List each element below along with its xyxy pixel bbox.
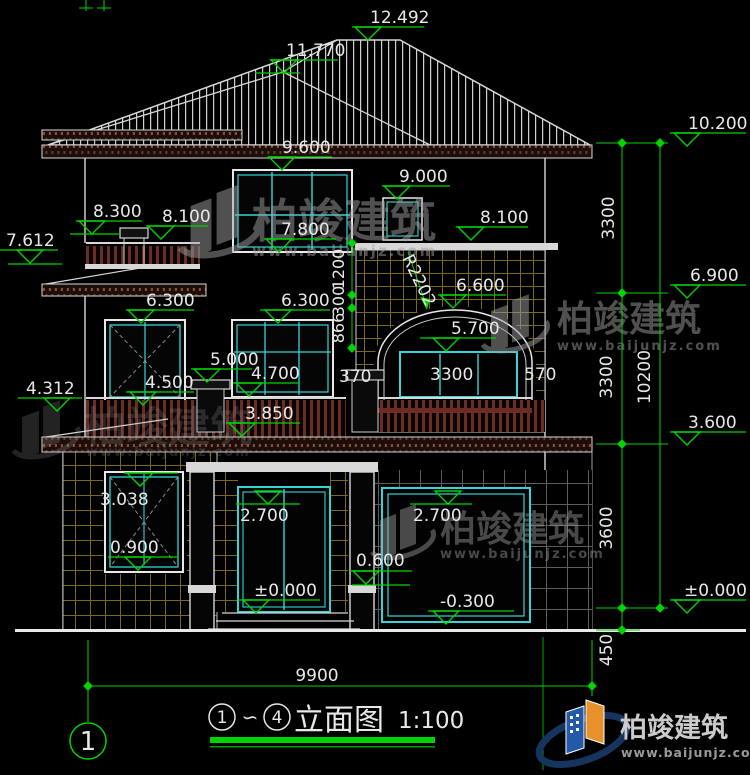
elev-door-top: 2.700	[240, 506, 289, 526]
drawing-title: 1 ∽ 4 立面图 1:100	[209, 703, 464, 748]
title-underline	[210, 737, 435, 743]
left-wing-eave-band	[42, 130, 242, 140]
dim-chain-3: 866	[329, 313, 348, 344]
svg-text:www.baijunjz.com: www.baijunjz.com	[86, 445, 251, 460]
elev-win2m-top: 6.300	[281, 291, 330, 311]
elev-ledge: 0.600	[356, 551, 405, 571]
elev-win1-sill: 0.900	[110, 538, 159, 558]
dim-arch-right: 570	[524, 365, 556, 385]
railing-arch-recess	[378, 400, 532, 432]
elev-win2l-top: 6.300	[146, 291, 195, 311]
elev-balc2-floor: 3.850	[245, 404, 294, 424]
logo-brand-name: 柏竣建筑	[620, 712, 728, 744]
logo-brand-url: www.baijunjz.com	[621, 745, 750, 760]
dim-right-seg3: 3600	[597, 506, 617, 549]
elev-slab3-right: 8.100	[480, 208, 529, 228]
elev-eave-right: 10.200	[688, 114, 747, 134]
elev-hip: 11.770	[286, 41, 345, 61]
dim-right-seg1: 3300	[599, 196, 619, 239]
brand-logo: 柏竣建筑 www.baijunjz.com	[533, 700, 750, 775]
dim-arch-win: 3300	[430, 365, 473, 385]
watermark-brand-text: 柏竣建筑	[252, 194, 436, 248]
post-cap-5000	[191, 380, 230, 389]
dim-chain-1: 1200	[329, 249, 348, 290]
elev-balc3-slab: 8.100	[162, 207, 211, 227]
title-tilde: ∽	[242, 705, 259, 729]
elev-win2l-sill: 4.500	[145, 373, 194, 393]
elev-win2m-sill: 4.700	[251, 364, 300, 384]
dim-chain-2: 300	[329, 286, 348, 317]
dim-arch-left: 370	[339, 367, 371, 387]
watermark-bottom: 柏竣建筑 www.baijunjz.com	[372, 504, 605, 562]
elev-skirt2: 4.312	[26, 379, 75, 399]
logo-building-orange	[586, 700, 604, 744]
dim-right-seg4: 450	[597, 634, 617, 666]
balcony-3f-left	[42, 228, 206, 296]
elev-arch-win-top: 5.700	[451, 319, 500, 339]
title-name: 立面图	[294, 703, 384, 738]
elev-win3-top: 9.600	[282, 138, 331, 158]
axis-bubble-1: 1	[70, 723, 106, 759]
svg-text:www.baijunjz.com: www.baijunjz.com	[440, 547, 605, 562]
elev-arch-top: 6.600	[456, 276, 505, 296]
elev-win1-top: 3.038	[100, 490, 149, 510]
dim-right-total: 10200	[635, 350, 655, 404]
elev-garage-top: 2.700	[413, 506, 462, 526]
dim-right-seg2: 3300	[597, 355, 617, 398]
elev-win3-sill: 7.800	[281, 220, 330, 240]
title-axis-end: 4	[272, 708, 283, 728]
elev-garage-floor: -0.300	[440, 592, 495, 612]
elev-win3s-top: 9.000	[399, 167, 448, 187]
dim-total-width: 9900	[295, 666, 338, 686]
title-scale: 1:100	[398, 708, 464, 734]
elev-floor0: ±0.000	[254, 581, 317, 601]
entry-steps	[208, 613, 360, 629]
elev-level3-right: 6.900	[690, 266, 739, 286]
elevation-canvas: 柏竣建筑 www.baijunjz.com 柏竣建筑 www.baijunjz.…	[0, 0, 750, 775]
porch-beam	[186, 462, 378, 472]
tiled-arch-section	[356, 250, 545, 432]
elev-level2-right: 3.600	[688, 413, 737, 433]
cad-elevation-drawing: 柏竣建筑 www.baijunjz.com 柏竣建筑 www.baijunjz.…	[0, 0, 750, 775]
svg-text:柏竣建筑: 柏竣建筑	[557, 299, 701, 340]
elev-floor0-right: ±0.000	[684, 581, 747, 601]
axis-bubble-label: 1	[80, 727, 97, 757]
elev-balc3-post: 8.300	[93, 202, 142, 222]
logo-building-blue	[566, 706, 584, 754]
porch-column-left	[190, 472, 214, 630]
elev-skirt3: 7.612	[6, 231, 55, 251]
elev-ridge: 12.492	[370, 8, 429, 28]
title-axis-start: 1	[217, 708, 228, 728]
